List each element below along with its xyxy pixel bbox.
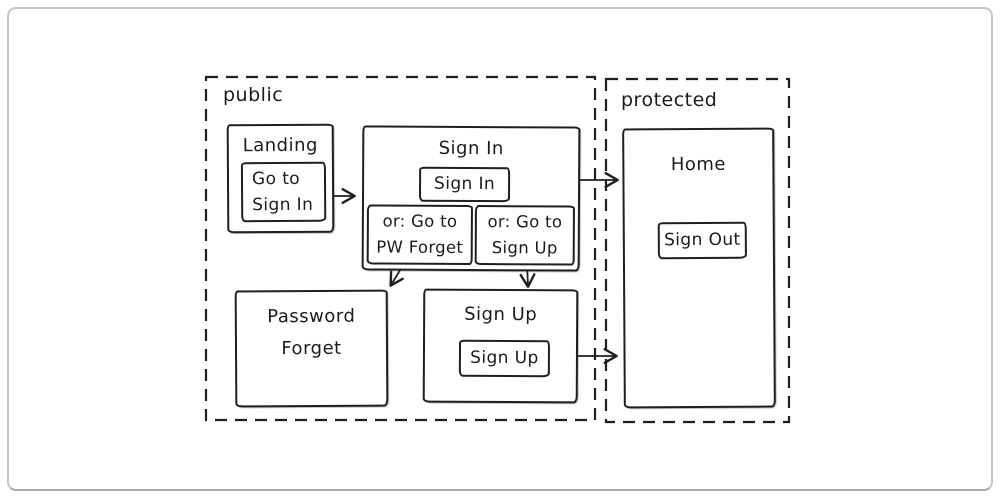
password-forget-title: Password Forget (237, 301, 386, 365)
sign-in-box: Sign In Sign In or: Go to PW Forget or: … (362, 125, 581, 271)
sign-in-alt-pw-forget: or: Go to PW Forget (367, 204, 473, 265)
sign-out-button: Sign Out (658, 222, 747, 260)
sign-up-button: Sign Up (459, 340, 550, 377)
sign-up-button-label: Sign Up (470, 345, 539, 372)
alt-su-line1: or: Go to (487, 209, 562, 236)
password-forget-line1: Password (237, 301, 386, 333)
alt-su-line2: Sign Up (492, 235, 558, 262)
public-region-label: public (223, 84, 283, 106)
landing-go-to-sign-in-button: Go to Sign In (241, 162, 326, 223)
sign-up-title: Sign Up (425, 304, 576, 326)
protected-region-label: protected (621, 89, 717, 111)
landing-box: Landing Go to Sign In (227, 124, 335, 234)
password-forget-line2: Forget (237, 332, 386, 364)
sign-up-box: Sign Up Sign Up (423, 289, 579, 404)
home-title: Home (624, 154, 772, 176)
home-box: Home Sign Out (622, 128, 776, 409)
landing-title: Landing (229, 135, 332, 157)
sign-in-title: Sign In (364, 137, 578, 159)
landing-button-line2: Sign In (252, 192, 313, 219)
landing-button-line1: Go to (252, 166, 300, 193)
sign-in-button: Sign In (419, 167, 510, 202)
sign-in-alt-sign-up: or: Go to Sign Up (475, 205, 575, 266)
sign-in-button-label: Sign In (434, 171, 495, 198)
alt-pw-line1: or: Go to (382, 208, 457, 235)
sign-out-button-label: Sign Out (664, 227, 741, 254)
alt-pw-line2: PW Forget (376, 235, 463, 262)
password-forget-box: Password Forget (235, 290, 389, 408)
diagram-canvas: public protected Landing Go to Sign In S… (0, 0, 1000, 500)
